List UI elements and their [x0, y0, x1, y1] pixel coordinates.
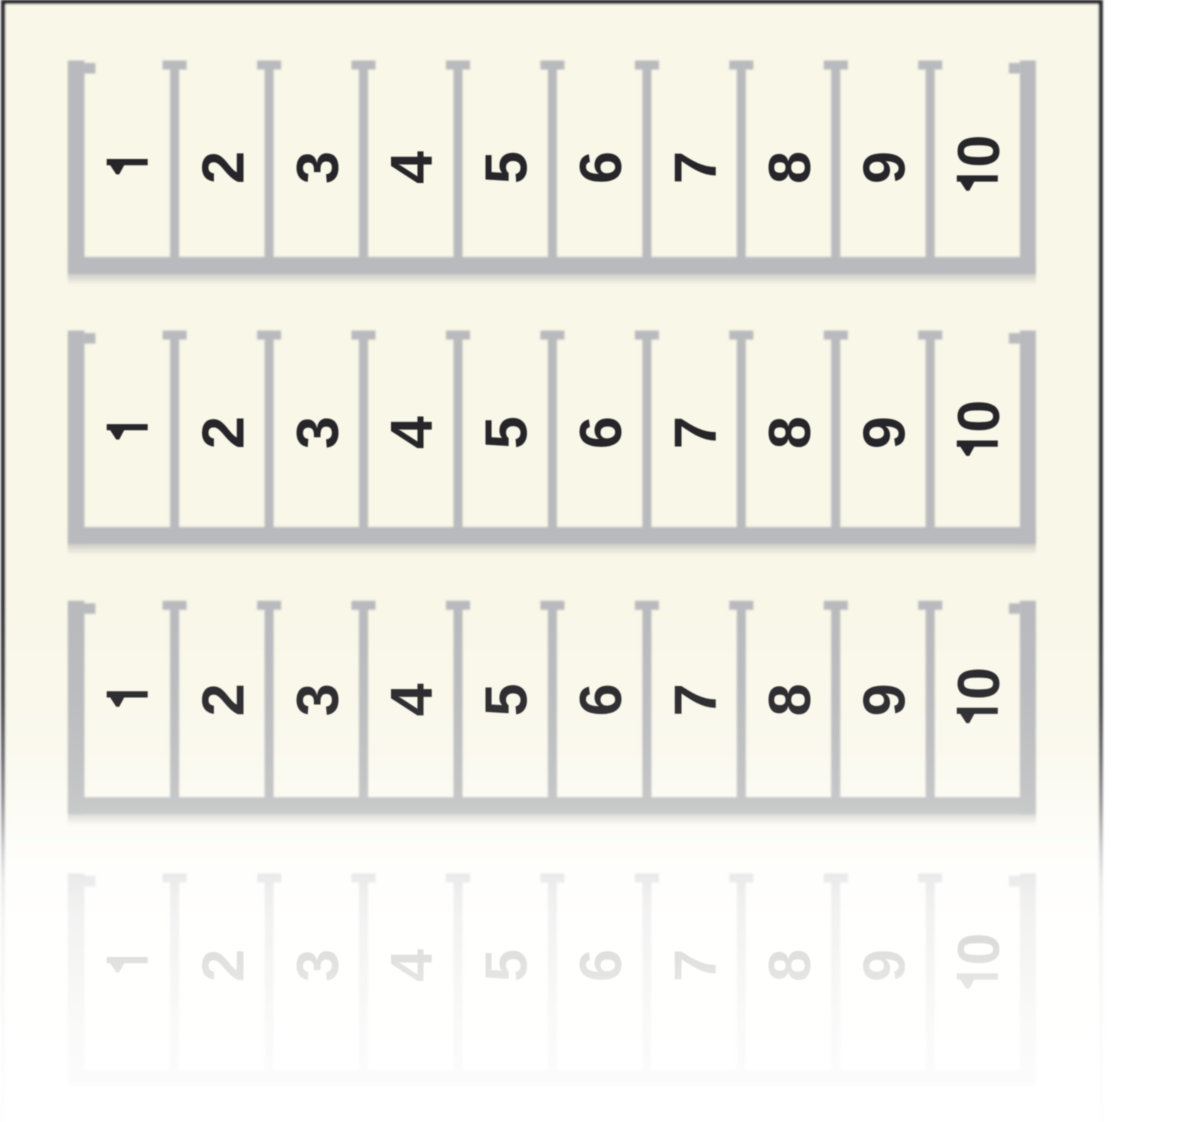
- svg-text:2: 2: [190, 949, 256, 982]
- svg-text:8: 8: [757, 416, 823, 449]
- svg-text:0: 0: [946, 933, 1012, 966]
- svg-text:7: 7: [663, 949, 729, 982]
- svg-text:0: 0: [946, 135, 1012, 168]
- svg-text:3: 3: [285, 151, 351, 184]
- svg-text:9: 9: [852, 683, 918, 716]
- svg-text:8: 8: [757, 683, 823, 716]
- svg-text:9: 9: [852, 151, 918, 184]
- svg-text:3: 3: [285, 683, 351, 716]
- svg-text:7: 7: [663, 151, 729, 184]
- svg-text:4: 4: [379, 949, 445, 982]
- svg-text:9: 9: [852, 416, 918, 449]
- svg-text:5: 5: [474, 949, 540, 982]
- svg-text:5: 5: [474, 416, 540, 449]
- svg-text:6: 6: [568, 949, 634, 982]
- svg-text:2: 2: [190, 683, 256, 716]
- svg-text:6: 6: [568, 416, 634, 449]
- svg-text:7: 7: [663, 683, 729, 716]
- svg-text:7: 7: [663, 416, 729, 449]
- svg-text:6: 6: [568, 151, 634, 184]
- svg-text:3: 3: [285, 416, 351, 449]
- svg-text:5: 5: [474, 683, 540, 716]
- svg-text:4: 4: [379, 683, 445, 716]
- svg-text:2: 2: [190, 416, 256, 449]
- svg-text:4: 4: [379, 416, 445, 449]
- svg-text:6: 6: [568, 683, 634, 716]
- svg-text:2: 2: [190, 151, 256, 184]
- svg-text:0: 0: [946, 400, 1012, 433]
- svg-text:8: 8: [757, 151, 823, 184]
- svg-text:0: 0: [946, 667, 1012, 700]
- svg-text:9: 9: [852, 949, 918, 982]
- svg-text:5: 5: [474, 151, 540, 184]
- svg-text:3: 3: [285, 949, 351, 982]
- svg-text:8: 8: [757, 949, 823, 982]
- svg-text:4: 4: [379, 151, 445, 184]
